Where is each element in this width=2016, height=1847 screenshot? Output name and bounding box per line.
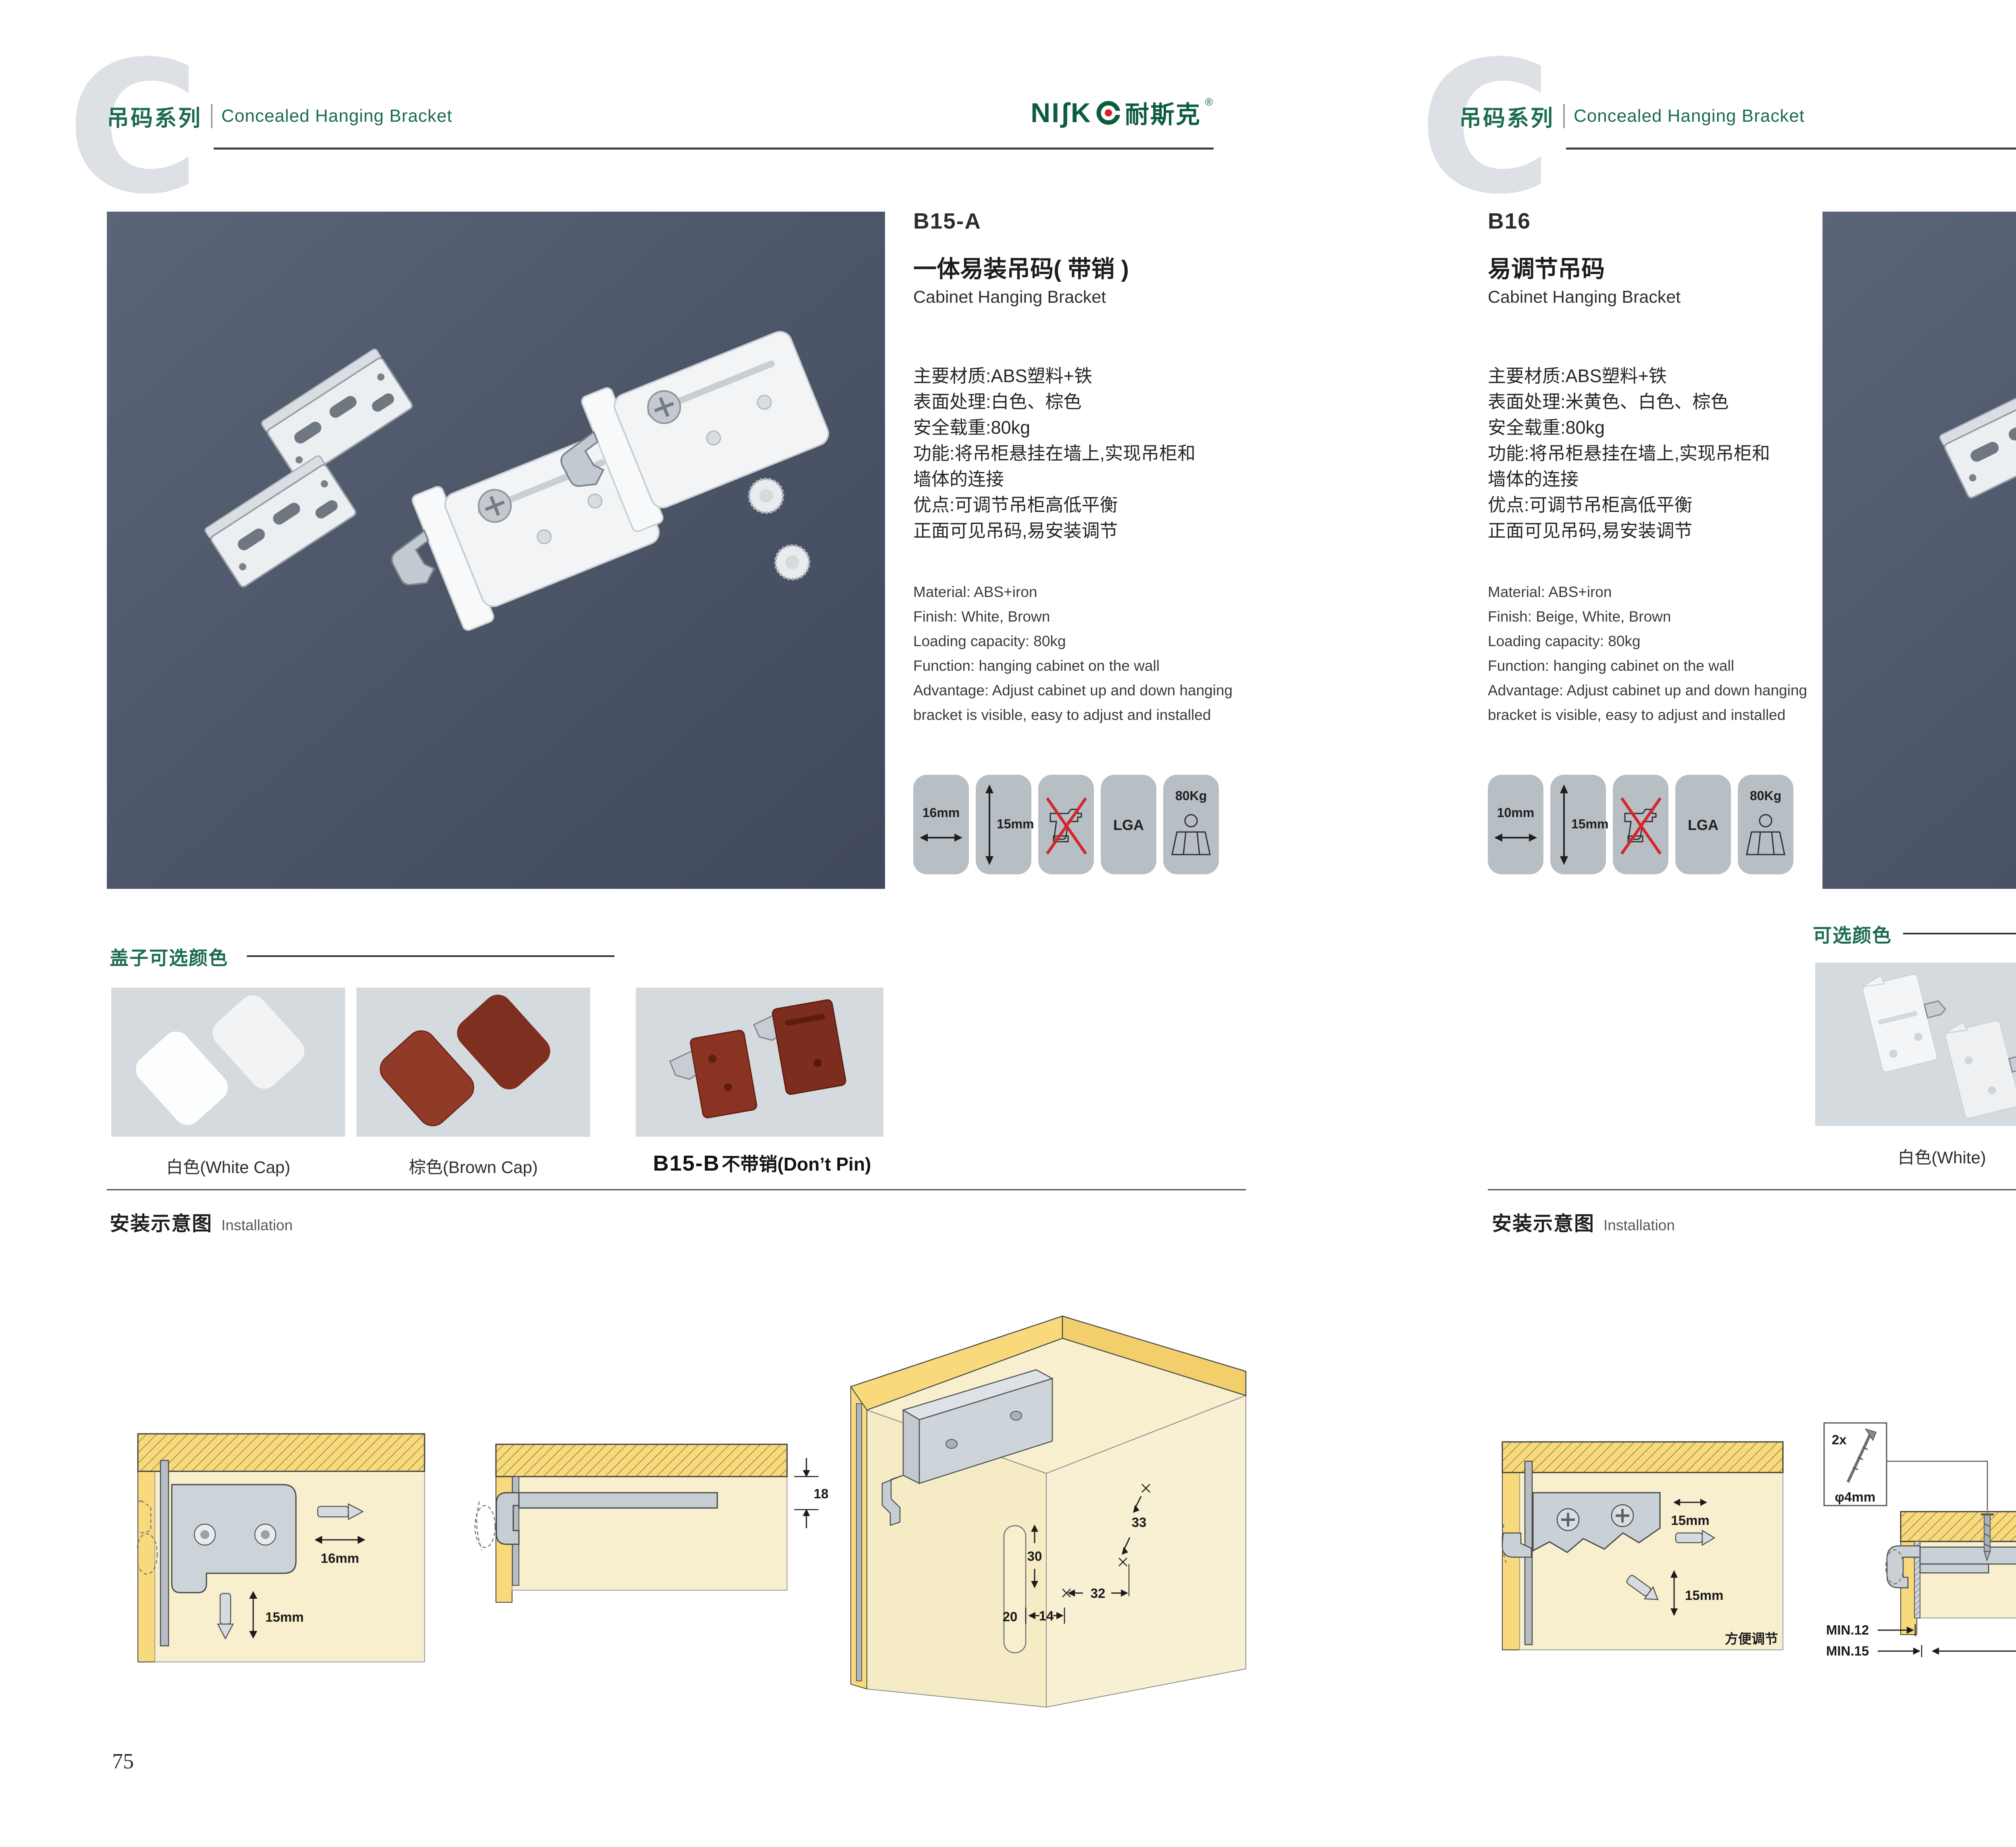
bracket-plate-side <box>519 1493 717 1508</box>
no-drill-icon <box>1038 775 1094 874</box>
spec-line: Function: hanging cabinet on the wall <box>913 653 1236 678</box>
screw-qty: 2x <box>1832 1432 1847 1447</box>
load-label: 80Kg <box>1738 788 1793 803</box>
spec-line: Finish: Beige, White, Brown <box>1488 604 1810 629</box>
photo-background <box>1822 212 2016 889</box>
colors-title: 可选颜色 <box>1813 920 1892 948</box>
product-name-cn: 易调节吊码 <box>1488 256 1810 282</box>
b15b-thumbnail <box>636 988 883 1137</box>
screw-diameter: φ4mm <box>1835 1489 1876 1504</box>
product-name-en: Cabinet Hanging Bracket <box>1488 287 1810 307</box>
screwdriver-bit <box>220 1593 231 1624</box>
lga-label: LGA <box>1675 817 1731 834</box>
white-caps-art <box>111 988 345 1137</box>
spec-line: Material: ABS+iron <box>913 580 1236 604</box>
dim-20: 20 <box>1003 1609 1018 1624</box>
colors-rule <box>1903 933 2016 934</box>
spec-line: 表面处理:米黄色、白色、棕色 <box>1488 389 1810 415</box>
dim-33: 33 <box>1132 1515 1147 1530</box>
product-code: B15-A <box>913 209 1236 233</box>
horizontal-arrow-icon <box>919 830 963 845</box>
load-capacity-icon: 80Kg <box>1738 775 1793 874</box>
dim-32: 32 <box>1091 1586 1106 1601</box>
brand-logo-word: NIʃK <box>1031 97 1092 129</box>
installation-title-en: Installation <box>1604 1217 1675 1234</box>
dim-14: 14 <box>1039 1608 1054 1623</box>
product-code: B16 <box>1488 209 1810 233</box>
specs-cn: 主要材质:ABS塑料+铁 表面处理:米黄色、白色、棕色 安全载重:80kg 功能… <box>1488 363 1810 544</box>
spec-line: 优点:可调节吊柜高低平衡 <box>1488 492 1810 518</box>
cap-white-caption: 白色(White Cap) <box>111 1154 345 1178</box>
install-diagram-front: 15mm 15mm 方便调节 <box>1502 1441 1784 1661</box>
specs-en: Material: ABS+iron Finish: White, Brown … <box>913 580 1236 727</box>
header-rule <box>214 148 1214 150</box>
specs-en: Material: ABS+iron Finish: Beige, White,… <box>1488 580 1810 727</box>
panel-height-icon: 15mm <box>1550 775 1606 874</box>
panel-height-label: 15mm <box>997 817 1034 832</box>
spec-line: 安全载重:80kg <box>1488 415 1810 441</box>
b15b-caption: B15-B 不带销(Don’t Pin) <box>621 1150 903 1176</box>
drill-crossed-icon <box>1613 775 1668 874</box>
spec-line: bracket is visible, easy to adjust and i… <box>1488 703 1810 727</box>
brand-logo: NIʃK 耐斯克 ® <box>1031 95 1213 130</box>
header-rule <box>1566 148 2016 150</box>
no-drill-icon <box>1613 775 1668 874</box>
page-number: 75 <box>112 1749 134 1774</box>
horizontal-arrow-icon <box>1493 830 1538 845</box>
series-title-cn: 吊码系列 <box>107 100 202 132</box>
product-info-column: B15-A 一体易装吊码( 带销 ) Cabinet Hanging Brack… <box>913 209 1236 874</box>
catalog-page-right: C 吊码系列 Concealed Hanging Bracket NIʃK 耐斯… <box>1352 0 2016 1847</box>
spec-line: Loading capacity: 80kg <box>1488 629 1810 653</box>
dim-min15: MIN.15 <box>1826 1643 1869 1658</box>
installation-title-cn: 安装示意图 <box>110 1208 212 1236</box>
spec-line: 正面可见吊码,易安装调节 <box>1488 518 1810 544</box>
product-photo-illustration <box>107 212 885 889</box>
spec-line: Advantage: Adjust cabinet up and down ha… <box>1488 678 1810 703</box>
cap-brown-caption: 棕色(Brown Cap) <box>356 1154 590 1178</box>
spec-line: 墙体的连接 <box>913 466 1236 492</box>
page-header: 吊码系列 Concealed Hanging Bracket <box>107 101 452 131</box>
drill-crossed-icon <box>1038 775 1094 874</box>
spec-line: Advantage: Adjust cabinet up and down ha… <box>913 678 1236 703</box>
specs-cn: 主要材质:ABS塑料+铁 表面处理:白色、棕色 安全载重:80kg 功能:将吊柜… <box>913 363 1236 544</box>
spec-line: 表面处理:白色、棕色 <box>913 389 1236 415</box>
cap-colors-title: 盖子可选颜色 <box>110 942 228 970</box>
white-bracket-art <box>1815 963 2016 1126</box>
feature-icon-row: 16mm 15mm <box>913 775 1236 874</box>
installation-header: 安装示意图 Installation <box>1492 1208 1675 1236</box>
screwdriver-bit <box>318 1506 348 1517</box>
load-platform-icon <box>1738 812 1793 860</box>
brand-logo-cjk: 耐斯克 <box>1125 95 1201 130</box>
catalog-page-left: C 吊码系列 Concealed Hanging Bracket NIʃK 耐斯… <box>0 0 1352 1847</box>
installation-rule <box>1488 1189 2016 1190</box>
installation-title-cn: 安装示意图 <box>1492 1208 1595 1236</box>
cap-colors-rule <box>247 955 614 957</box>
spec-line: 主要材质:ABS塑料+铁 <box>1488 363 1810 389</box>
installation-title-en: Installation <box>221 1217 293 1234</box>
product-photo-illustration <box>1822 212 2016 889</box>
panel-width-icon: 10mm <box>1488 775 1543 874</box>
spec-line: Loading capacity: 80kg <box>913 629 1236 653</box>
product-name-en: Cabinet Hanging Bracket <box>913 287 1236 307</box>
header-divider-bar <box>1563 104 1565 128</box>
spec-line: 安全载重:80kg <box>913 415 1236 441</box>
series-title-cn: 吊码系列 <box>1459 100 1554 132</box>
product-photo-b15a <box>107 212 885 889</box>
spec-line: Finish: White, Brown <box>913 604 1236 629</box>
b15b-text: 不带销(Don’t Pin) <box>722 1154 871 1175</box>
vertical-arrow-icon <box>982 784 997 865</box>
spec-line: 功能:将吊柜悬挂在墙上,实现吊柜和 <box>1488 441 1810 466</box>
panel-height-icon: 15mm <box>976 775 1031 874</box>
b15b-brackets-art <box>636 988 883 1137</box>
brand-registered-mark: ® <box>1205 96 1213 108</box>
dim-horizontal: 15mm <box>1671 1513 1709 1528</box>
product-name-cn: 一体易装吊码( 带销 ) <box>913 256 1236 282</box>
series-title-en: Concealed Hanging Bracket <box>221 106 452 126</box>
dim-vertical: 15mm <box>265 1610 304 1624</box>
installation-rule <box>107 1189 1246 1190</box>
series-title-en: Concealed Hanging Bracket <box>1574 106 1805 126</box>
page-header: 吊码系列 Concealed Hanging Bracket <box>1459 101 1805 131</box>
white-option-caption: 白色(White) <box>1815 1144 2016 1169</box>
cap-white-thumbnail <box>111 988 345 1137</box>
adjust-note: 方便调节 <box>1725 1631 1778 1646</box>
product-info-column: B16 易调节吊码 Cabinet Hanging Bracket 主要材质:A… <box>1488 209 1810 874</box>
product-photo-b16 <box>1822 212 2016 889</box>
b15b-code: B15-B <box>653 1151 720 1175</box>
install-diagram-front: 16mm 15mm <box>137 1433 425 1679</box>
panel-width-icon: 16mm <box>913 775 969 874</box>
lga-cert-icon: LGA <box>1675 775 1731 874</box>
cap-brown-thumbnail <box>356 988 590 1137</box>
vertical-arrow-icon <box>1557 784 1571 865</box>
header-divider-bar <box>211 104 212 128</box>
spec-line: Function: hanging cabinet on the wall <box>1488 653 1810 678</box>
spec-line: 优点:可调节吊柜高低平衡 <box>913 492 1236 518</box>
load-platform-icon <box>1163 812 1219 860</box>
white-option-thumbnail <box>1815 963 2016 1126</box>
bracket-arm <box>1920 1547 2016 1564</box>
load-capacity-icon: 80Kg <box>1163 775 1219 874</box>
dim-min12: MIN.12 <box>1826 1622 1869 1637</box>
lga-label: LGA <box>1101 817 1156 834</box>
lga-cert-icon: LGA <box>1101 775 1156 874</box>
spec-line: 功能:将吊柜悬挂在墙上,实现吊柜和 <box>913 441 1236 466</box>
wall-rail-section <box>160 1460 169 1646</box>
panel-width-label: 16mm <box>913 805 969 820</box>
brand-logo-target-icon <box>1096 100 1121 125</box>
dim-30: 30 <box>1027 1549 1042 1564</box>
panel-width-label: 10mm <box>1488 805 1543 820</box>
spec-line: 正面可见吊码,易安装调节 <box>913 518 1236 544</box>
installation-header: 安装示意图 Installation <box>110 1208 293 1236</box>
dim-vertical: 15mm <box>1685 1588 1723 1603</box>
panel-height-label: 15mm <box>1571 817 1609 832</box>
spec-line: Material: ABS+iron <box>1488 580 1810 604</box>
install-diagram-side: 18 <box>474 1433 829 1618</box>
brown-caps-art <box>356 988 590 1137</box>
load-label: 80Kg <box>1163 788 1219 803</box>
install-diagram-perspective: 33 30 32 20 14 <box>827 1302 1254 1713</box>
spec-line: bracket is visible, easy to adjust and i… <box>913 703 1236 727</box>
wall-rail-3d <box>856 1404 862 1681</box>
spec-line: 主要材质:ABS塑料+铁 <box>913 363 1236 389</box>
install-diagram-screw: 2x φ4mm 19 MIN <box>1814 1409 2016 1663</box>
dim-horizontal: 16mm <box>321 1551 359 1566</box>
spec-line: 墙体的连接 <box>1488 466 1810 492</box>
feature-icon-row: 10mm 15mm <box>1488 775 1810 874</box>
